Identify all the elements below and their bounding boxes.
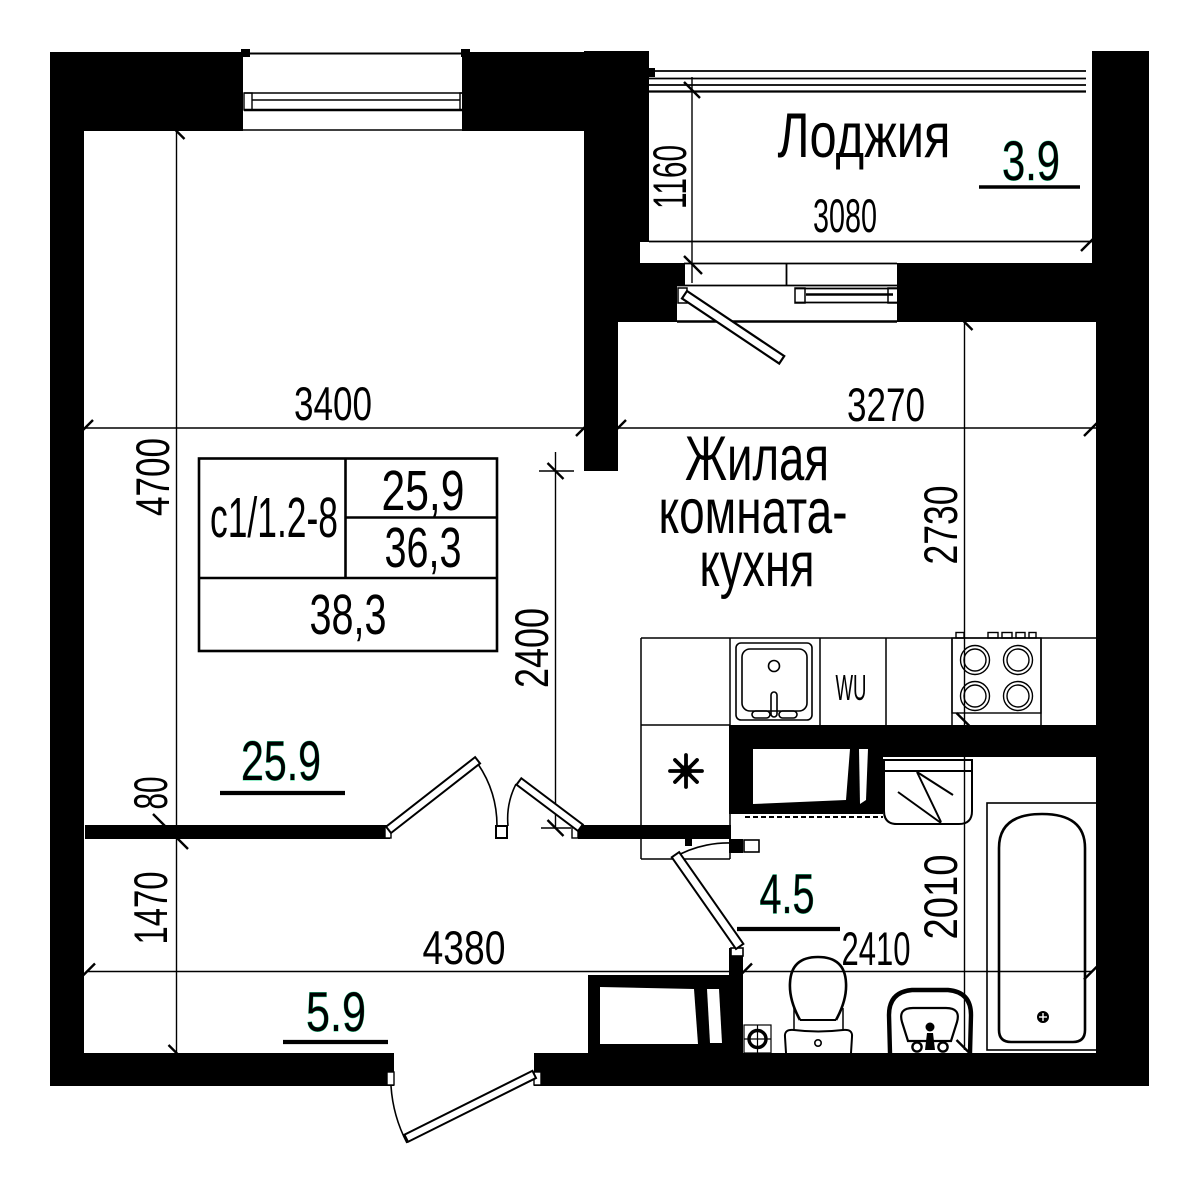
svg-text:WU: WU xyxy=(836,667,867,708)
svg-text:2730: 2730 xyxy=(914,486,967,565)
svg-text:2010: 2010 xyxy=(914,855,967,940)
svg-text:36,3: 36,3 xyxy=(385,516,462,580)
svg-text:38,3: 38,3 xyxy=(310,583,387,647)
svg-text:с1/1.2-8: с1/1.2-8 xyxy=(210,486,338,550)
svg-text:4.5: 4.5 xyxy=(760,862,815,925)
svg-text:1470: 1470 xyxy=(124,872,177,945)
svg-text:2400: 2400 xyxy=(505,608,558,688)
svg-text:3.9: 3.9 xyxy=(1002,129,1060,192)
svg-text:25,9: 25,9 xyxy=(382,459,465,523)
svg-text:1160: 1160 xyxy=(643,145,696,209)
svg-text:кухня: кухня xyxy=(700,530,815,600)
svg-text:3080: 3080 xyxy=(813,189,877,242)
svg-text:4700: 4700 xyxy=(126,438,179,516)
svg-text:80: 80 xyxy=(124,777,177,810)
svg-text:4380: 4380 xyxy=(423,921,506,974)
svg-text:25.9: 25.9 xyxy=(241,729,321,792)
svg-text:3400: 3400 xyxy=(294,377,372,430)
svg-text:Лоджия: Лоджия xyxy=(778,101,951,171)
svg-text:5.9: 5.9 xyxy=(306,980,366,1043)
svg-text:2410: 2410 xyxy=(842,922,911,975)
svg-text:3270: 3270 xyxy=(847,378,925,431)
